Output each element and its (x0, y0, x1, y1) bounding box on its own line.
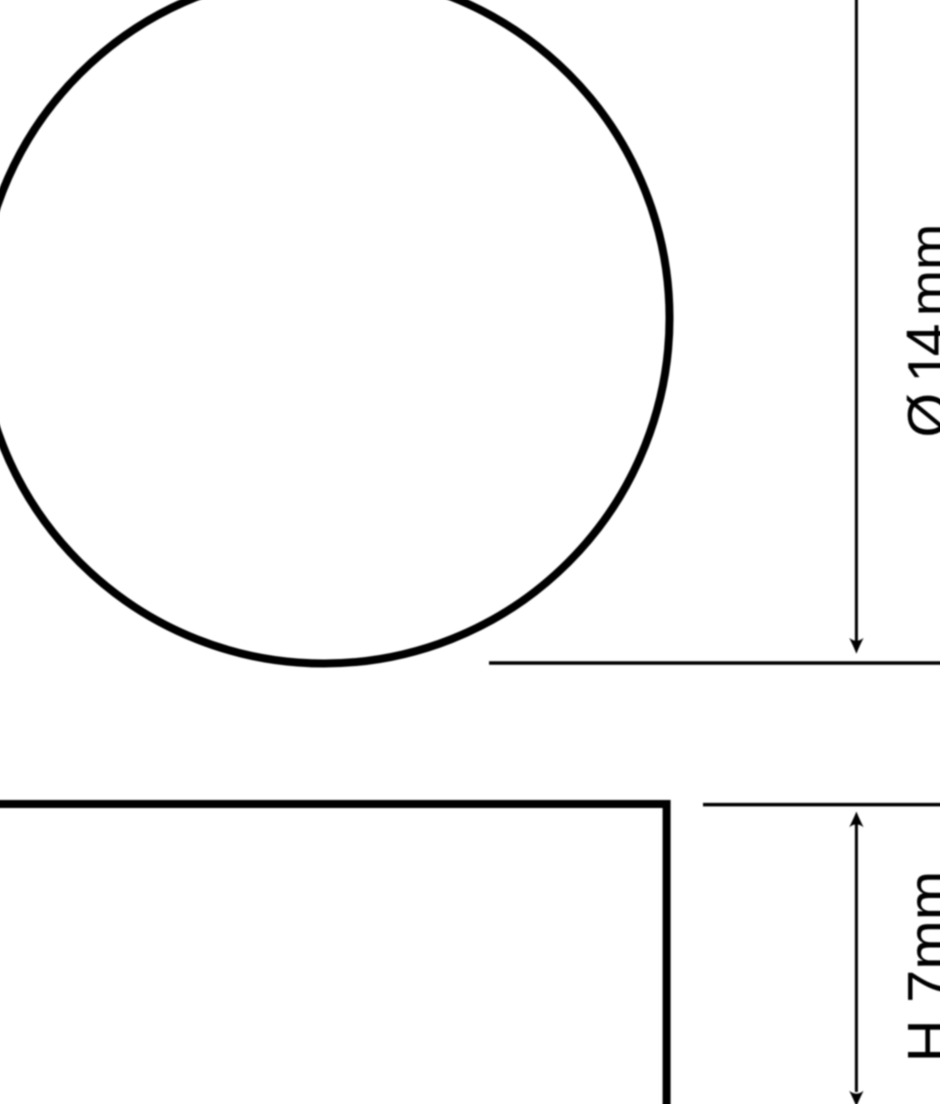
svg-text:mm: mm (898, 224, 940, 316)
svg-text:H 7mm: H 7mm (895, 871, 940, 1063)
svg-text:1: 1 (897, 351, 940, 383)
svg-text:Ø: Ø (897, 393, 940, 438)
